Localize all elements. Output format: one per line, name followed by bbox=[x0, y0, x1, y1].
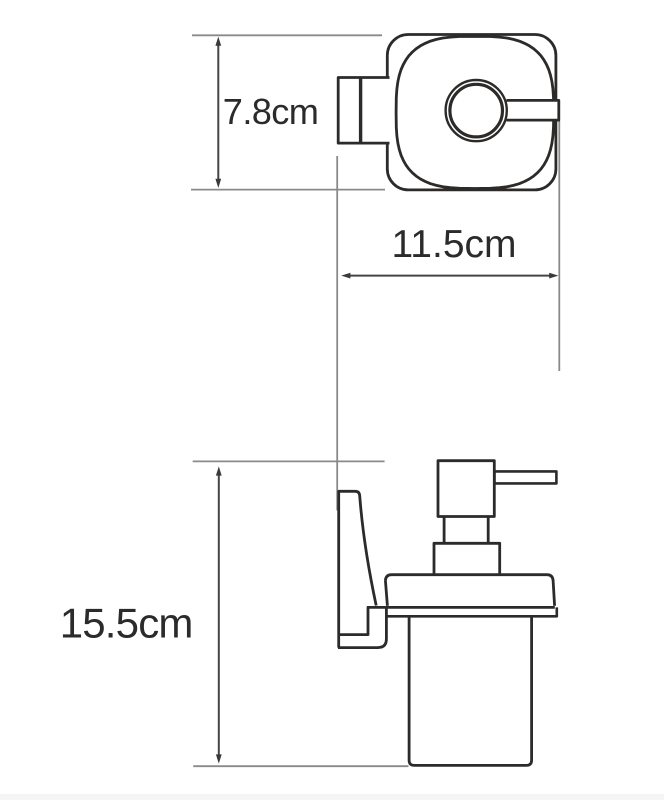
svg-text:7.8cm: 7.8cm bbox=[223, 91, 319, 132]
svg-text:15.5cm: 15.5cm bbox=[60, 600, 193, 647]
svg-text:11.5cm: 11.5cm bbox=[392, 223, 517, 266]
